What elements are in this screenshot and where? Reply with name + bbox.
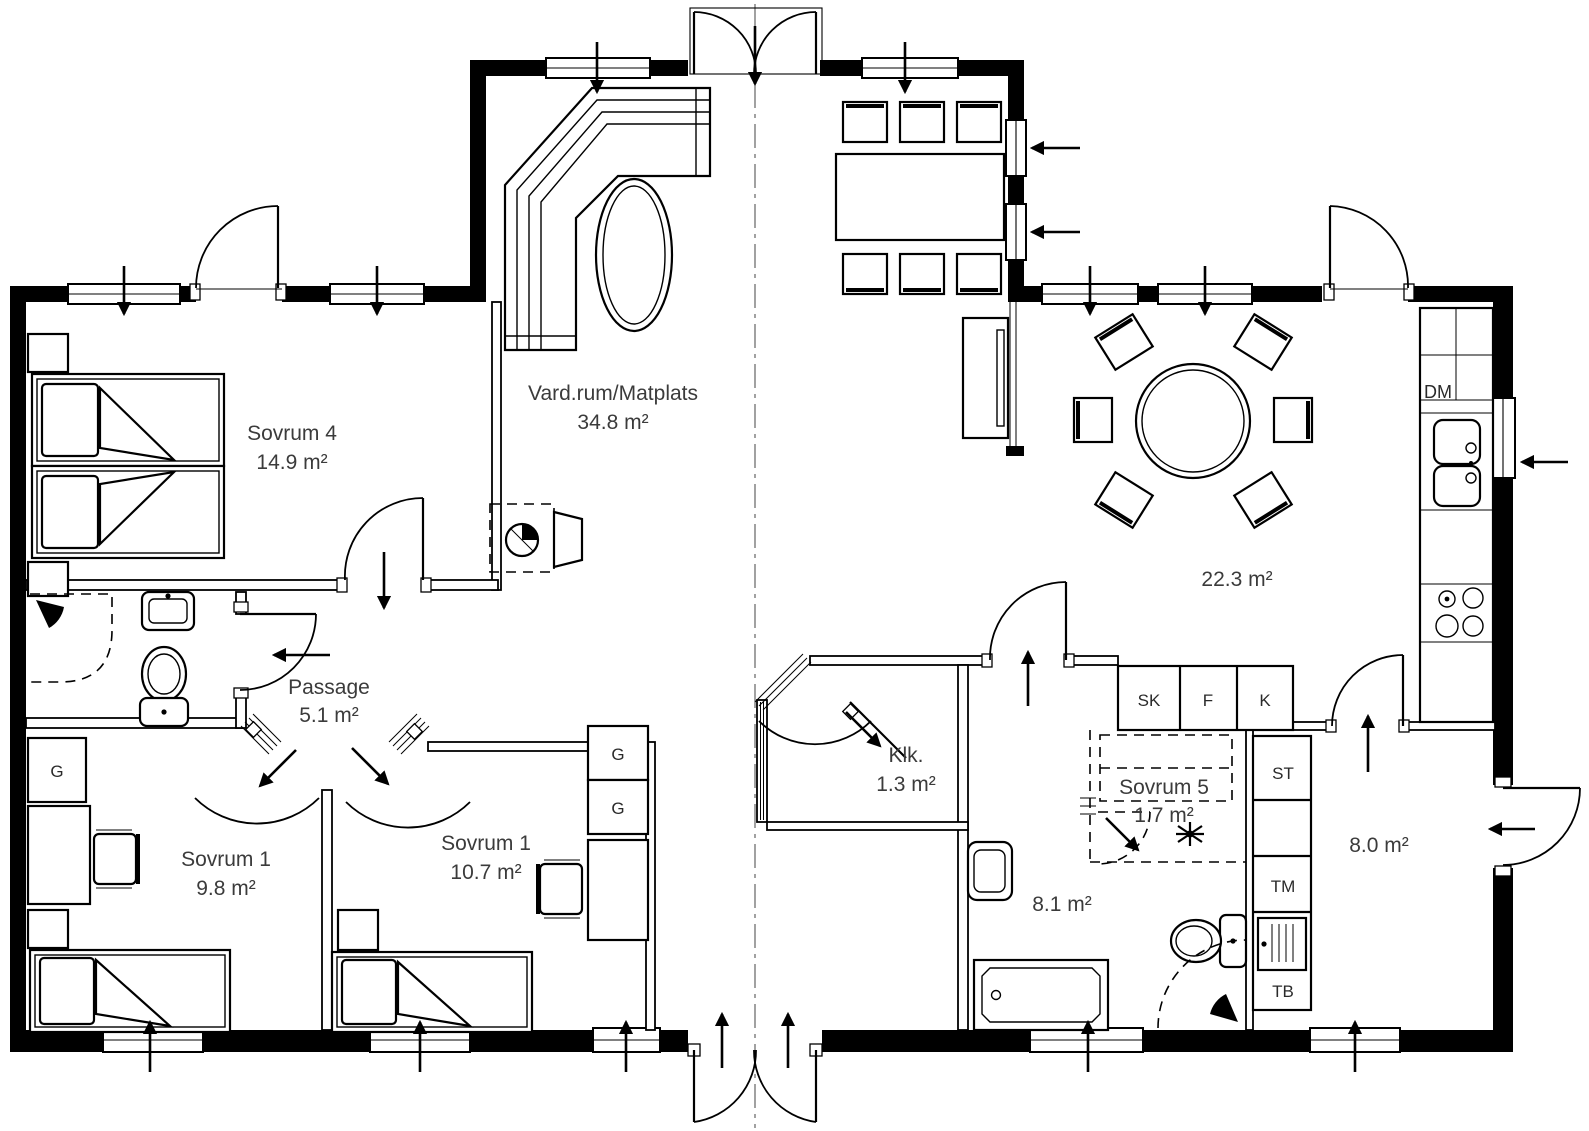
label-sk: SK <box>1138 691 1161 710</box>
window <box>1491 398 1515 478</box>
double-door <box>688 1044 822 1122</box>
kitchen-sink-icon <box>1434 420 1480 506</box>
dining-table <box>836 154 1004 240</box>
room-label-sovrum1m-name: Sovrum 1 <box>441 832 531 855</box>
sovrum4-furniture <box>28 334 224 596</box>
round-dining-furniture <box>963 314 1312 528</box>
desk <box>588 840 648 940</box>
shower-icon <box>1210 994 1238 1022</box>
exterior-door <box>1495 777 1580 876</box>
nightstand <box>28 910 68 948</box>
washbasin-icon <box>142 592 194 630</box>
chair <box>843 254 887 294</box>
interior-door <box>195 722 319 824</box>
room-label-vardagsrum-name: Vard.rum/Matplats <box>528 382 698 405</box>
toilet-icon <box>140 647 188 726</box>
nightstand <box>28 334 68 372</box>
drying-cabinet-icon <box>1258 918 1306 970</box>
desk <box>28 806 90 904</box>
chair <box>1074 398 1112 442</box>
kitchen-counter <box>1420 308 1493 722</box>
chair <box>1234 472 1291 528</box>
floorplan-canvas: Sovrum 4 14.9 m² Vard.rum/Matplats 34.8 … <box>0 0 1589 1131</box>
room-label-sovrum5-name: Sovrum 5 <box>1119 776 1209 799</box>
room-label-passage-name: Passage <box>288 676 370 699</box>
angled-wall-stub <box>1080 798 1096 814</box>
round-table <box>1136 364 1250 478</box>
coffee-table <box>596 179 672 331</box>
washbasin-icon <box>968 842 1012 900</box>
label-f: F <box>1203 691 1213 710</box>
bathroom-east-fixtures <box>968 842 1246 1030</box>
bed <box>30 950 230 1032</box>
office-chair <box>538 860 582 918</box>
floorplan-drawing: Sovrum 4 14.9 m² Vard.rum/Matplats 34.8 … <box>0 0 1589 1131</box>
livingroom-furniture <box>490 88 710 572</box>
dining-furniture <box>836 102 1004 294</box>
bed <box>32 374 224 466</box>
label-tm: TM <box>1271 877 1296 896</box>
interior-door <box>759 702 906 758</box>
chair <box>957 254 1001 294</box>
window <box>1006 204 1026 260</box>
label-dishwasher: DM <box>1424 382 1452 402</box>
wood-stove-icon <box>490 504 582 572</box>
label-wardrobe-g: G <box>611 745 624 764</box>
label-tb: TB <box>1272 982 1294 1001</box>
chair <box>843 102 887 142</box>
room-label-sovrum4-name: Sovrum 4 <box>247 422 337 445</box>
bathroom-west-fixtures <box>30 592 194 726</box>
room-label-passage-area: 5.1 m² <box>299 704 359 727</box>
chair <box>1095 314 1152 370</box>
room-label-sovrum1w-name: Sovrum 1 <box>181 848 271 871</box>
room-label-badrum-area: 8.1 m² <box>1032 893 1092 916</box>
bed <box>32 466 224 558</box>
room-label-vardagsrum-area: 34.8 m² <box>577 411 648 434</box>
shower-icon <box>36 600 64 628</box>
room-label-sovrum4-area: 14.9 m² <box>256 451 327 474</box>
nightstand <box>338 910 378 950</box>
room-label-klk-area: 1.3 m² <box>876 773 936 796</box>
bathtub-icon <box>974 960 1108 1030</box>
label-st: ST <box>1272 764 1294 783</box>
window <box>862 58 958 78</box>
angled-wall-stub <box>755 654 811 710</box>
exterior-door <box>1324 206 1414 300</box>
sideboard <box>963 318 1008 438</box>
label-k: K <box>1259 691 1271 710</box>
office-chair <box>94 830 138 888</box>
room-label-klk-name: Klk. <box>888 744 923 767</box>
room-label-kok-area: 22.3 m² <box>1201 568 1272 591</box>
chair <box>957 102 1001 142</box>
chair <box>1234 314 1291 370</box>
room-label-sovrum5-area: 1.7 m² <box>1134 804 1194 827</box>
nightstand <box>28 562 68 596</box>
label-wardrobe-g: G <box>611 799 624 818</box>
room-label-sovrum1m-area: 10.7 m² <box>450 861 521 884</box>
room-label-hall-area: 8.0 m² <box>1349 834 1409 857</box>
chair <box>900 102 944 142</box>
room-label-sovrum1w-area: 9.8 m² <box>196 877 256 900</box>
exterior-door <box>190 206 286 300</box>
chair <box>1095 472 1152 528</box>
chair <box>1274 398 1312 442</box>
angled-wall-stub <box>241 714 281 754</box>
window <box>1030 1028 1143 1052</box>
bed <box>332 952 532 1032</box>
label-wardrobe-g: G <box>50 762 63 781</box>
window <box>1006 120 1026 176</box>
chair <box>900 254 944 294</box>
